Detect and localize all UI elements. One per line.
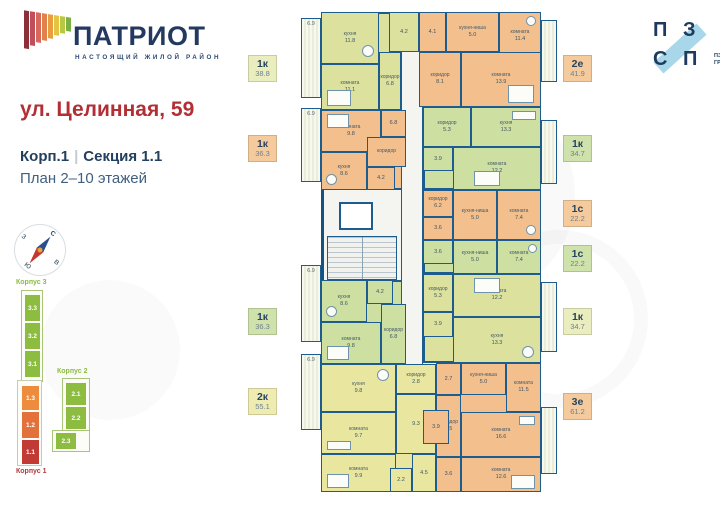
room-a3-kitchen: кухня8.6 <box>321 152 367 190</box>
korpus1-cell: 1.1 <box>22 440 39 464</box>
unit-area: 61.2 <box>570 408 585 416</box>
korpus-label: Корп.1 <box>20 148 69 165</box>
room-a1-kitchen: кухня11.8 <box>321 12 379 64</box>
room-a9-room1: комната9.7 <box>321 412 396 454</box>
sofa-furniture <box>327 441 351 450</box>
room-a7-kitchen-niche: кухня-ниша5.0 <box>453 240 497 274</box>
bed-furniture <box>474 171 500 186</box>
bed-furniture <box>327 346 349 360</box>
unit-chip: 2к55.1 <box>248 388 277 415</box>
korpus1-cell: 1.2 <box>22 412 39 438</box>
partner-letter: С <box>653 49 667 69</box>
room-a3-bath: 4.2 <box>367 167 395 190</box>
sofa-furniture <box>512 111 536 120</box>
partner-caption-line2: ГРУПП <box>714 60 720 67</box>
room-a7-room: комната7.4 <box>497 240 541 274</box>
room-a4-bath: 3.9 <box>423 147 453 171</box>
unit-chip: 1к34.7 <box>563 135 592 162</box>
korpus2-cell: 2.1 <box>66 383 86 405</box>
bed-furniture <box>327 114 349 128</box>
table-furniture <box>526 16 536 26</box>
unit-chip: 1с22.2 <box>563 245 592 272</box>
bed-furniture <box>327 474 349 488</box>
room-a9-room2: комната9.9 <box>321 454 396 492</box>
watermark-circle <box>40 280 180 420</box>
room-a6-room: комната7.4 <box>497 190 541 240</box>
unit-area: 55.1 <box>255 403 270 411</box>
room-a10-room2: комната16.6 <box>461 412 541 457</box>
building-section-line: Корп.1|Секция 1.1 <box>20 148 162 165</box>
room-a6-kitchen-niche: кухня-ниша5.0 <box>453 190 497 240</box>
room-a7-bath: 3.6 <box>423 240 453 264</box>
korpus2-cell: 2.2 <box>66 407 86 429</box>
unit-area: 22.2 <box>570 260 585 268</box>
table-furniture <box>519 416 535 425</box>
brand-title: ПАТРИОТ <box>73 21 205 52</box>
compass-east-label: В <box>52 259 60 267</box>
room-a5-room: комната9.8 <box>321 322 381 364</box>
korpus3-label: Корпус 3 <box>16 279 47 286</box>
brand-flag-icon <box>24 10 71 55</box>
room-a8-hall: коридор5.3 <box>423 274 453 312</box>
room-a5-bath: 4.2 <box>367 280 393 304</box>
unit-area: 34.7 <box>570 150 585 158</box>
balcony: 6.9 <box>301 18 321 98</box>
room-a3-storage: 6.8 <box>381 110 406 137</box>
korpus3-cell: 3.1 <box>25 351 40 377</box>
unit-chip: 1с22.2 <box>563 200 592 227</box>
korpus3-cell: 3.3 <box>25 295 40 321</box>
partner-caption-line1: ПЗСП <box>714 53 720 60</box>
table-furniture <box>522 346 534 358</box>
staircase <box>327 236 397 280</box>
bed-furniture <box>511 475 535 489</box>
table-furniture <box>528 244 537 253</box>
room-a10-room1: комната11.5 <box>506 363 541 412</box>
balcony: 6.9 <box>301 354 321 430</box>
room-a2-bath: 4.1 <box>419 12 446 52</box>
unit-chip: 3е61.2 <box>563 393 592 420</box>
room-a1-bath: 4.2 <box>389 12 419 52</box>
unit-area: 38.8 <box>255 70 270 78</box>
korpus3-diagram: 3.3 3.2 3.1 <box>21 290 43 382</box>
korpus2-cell: 2.3 <box>56 433 76 449</box>
room-a8-kitchen: кухня13.3 <box>453 317 541 363</box>
korpus3-cell: 3.2 <box>25 323 40 349</box>
korpus1-diagram: 1.3 1.2 1.1 <box>17 380 42 466</box>
room-a10-wardrobe: 3.9 <box>423 410 449 444</box>
compass-west-label: З <box>20 233 28 241</box>
room-a5-hall: коридор6.8 <box>381 304 406 364</box>
compass-rose: С В Ю З <box>8 218 73 283</box>
room-a6-hall: коридор6.2 <box>423 190 453 217</box>
table-furniture <box>377 369 389 381</box>
balcony: 6.9 <box>301 108 321 182</box>
room-a8-bath: 3.9 <box>423 312 453 337</box>
balcony <box>541 20 557 82</box>
bed-furniture <box>508 85 534 103</box>
room-a8-room: комната12.2 <box>453 274 541 317</box>
elevator <box>339 202 373 230</box>
room-a1-room: комната11.1 <box>321 64 379 110</box>
table-furniture <box>526 225 536 235</box>
table-furniture <box>326 306 337 317</box>
section-label: Секция 1.1 <box>83 148 162 165</box>
unit-area: 22.2 <box>570 215 585 223</box>
room-a9-bath2: 4.5 <box>412 454 436 492</box>
korpus1-label: Корпус 1 <box>16 468 47 475</box>
room-a6-bath: 3.6 <box>423 217 453 240</box>
balcony <box>541 282 557 352</box>
bed-furniture <box>474 278 500 293</box>
partner-letter: П <box>683 49 697 69</box>
unit-chip: 1к36.3 <box>248 308 277 335</box>
floors-range-label: План 2–10 этажей <box>20 170 147 187</box>
korpus2-label: Корпус 2 <box>57 368 88 375</box>
room-a2-hall: коридор8.1 <box>419 52 461 107</box>
unit-chip: 1к38.8 <box>248 55 277 82</box>
room-a5-kitchen: кухня8.6 <box>321 280 367 322</box>
room-a9-hall1: коридор2.8 <box>396 364 436 394</box>
brand-subtitle: НАСТОЯЩИЙ ЖИЛОЙ РАЙОН <box>75 54 221 61</box>
unit-chip: 1к36.3 <box>248 135 277 162</box>
address-title: ул. Целинная, 59 <box>20 98 194 122</box>
unit-chip: 1к34.7 <box>563 308 592 335</box>
page: { "palette":{"wall":"#1d5c8e","orange":"… <box>0 0 720 508</box>
partner-letter: П <box>653 20 667 40</box>
bed-furniture <box>327 90 351 106</box>
room-a9-kitchen: кухня9.8 <box>321 364 396 412</box>
korpus1-cell: 1.3 <box>22 386 39 410</box>
room-a4-hall: коридор5.3 <box>423 107 471 147</box>
balcony <box>541 120 557 184</box>
balcony <box>541 407 557 474</box>
room-a9-bath1: 2.2 <box>390 468 412 492</box>
compass: С В Ю З <box>14 224 66 276</box>
unit-area: 41.9 <box>570 70 585 78</box>
room-a4-room: комната12.2 <box>453 147 541 190</box>
room-a10-bath2: 3.6 <box>436 457 461 492</box>
unit-chip: 2е41.9 <box>563 55 592 82</box>
unit-area: 34.7 <box>570 323 585 331</box>
brand-logo <box>24 14 71 52</box>
room-a1-hall: коридор6.8 <box>379 52 401 110</box>
partner-letter: З <box>683 20 696 40</box>
room-a2-kitchen-niche: кухня-ниша5.0 <box>446 12 499 52</box>
room-a10-bath1: 2.7 <box>436 363 461 395</box>
room-a2-room2: комната13.9 <box>461 52 541 107</box>
partner-logo: П З С П ПЗСП ГРУПП <box>650 20 720 78</box>
divider: | <box>69 148 83 165</box>
floor-plan: кухня11.8 коридор6.8 комната11.1 4.2 6.9… <box>301 12 558 492</box>
room-a3-hall: коридор <box>367 137 406 167</box>
table-furniture <box>326 174 337 185</box>
unit-area: 36.3 <box>255 323 270 331</box>
partner-caption: ПЗСП ГРУПП <box>714 53 720 67</box>
room-a10-kitchen-niche: кухня-ниша5.0 <box>461 363 506 395</box>
unit-area: 36.3 <box>255 150 270 158</box>
room-a10-room3: комната12.6 <box>461 457 541 492</box>
balcony: 6.9 <box>301 265 321 342</box>
room-a4-kitchen: кухня13.3 <box>471 107 541 147</box>
table-furniture <box>362 45 374 57</box>
